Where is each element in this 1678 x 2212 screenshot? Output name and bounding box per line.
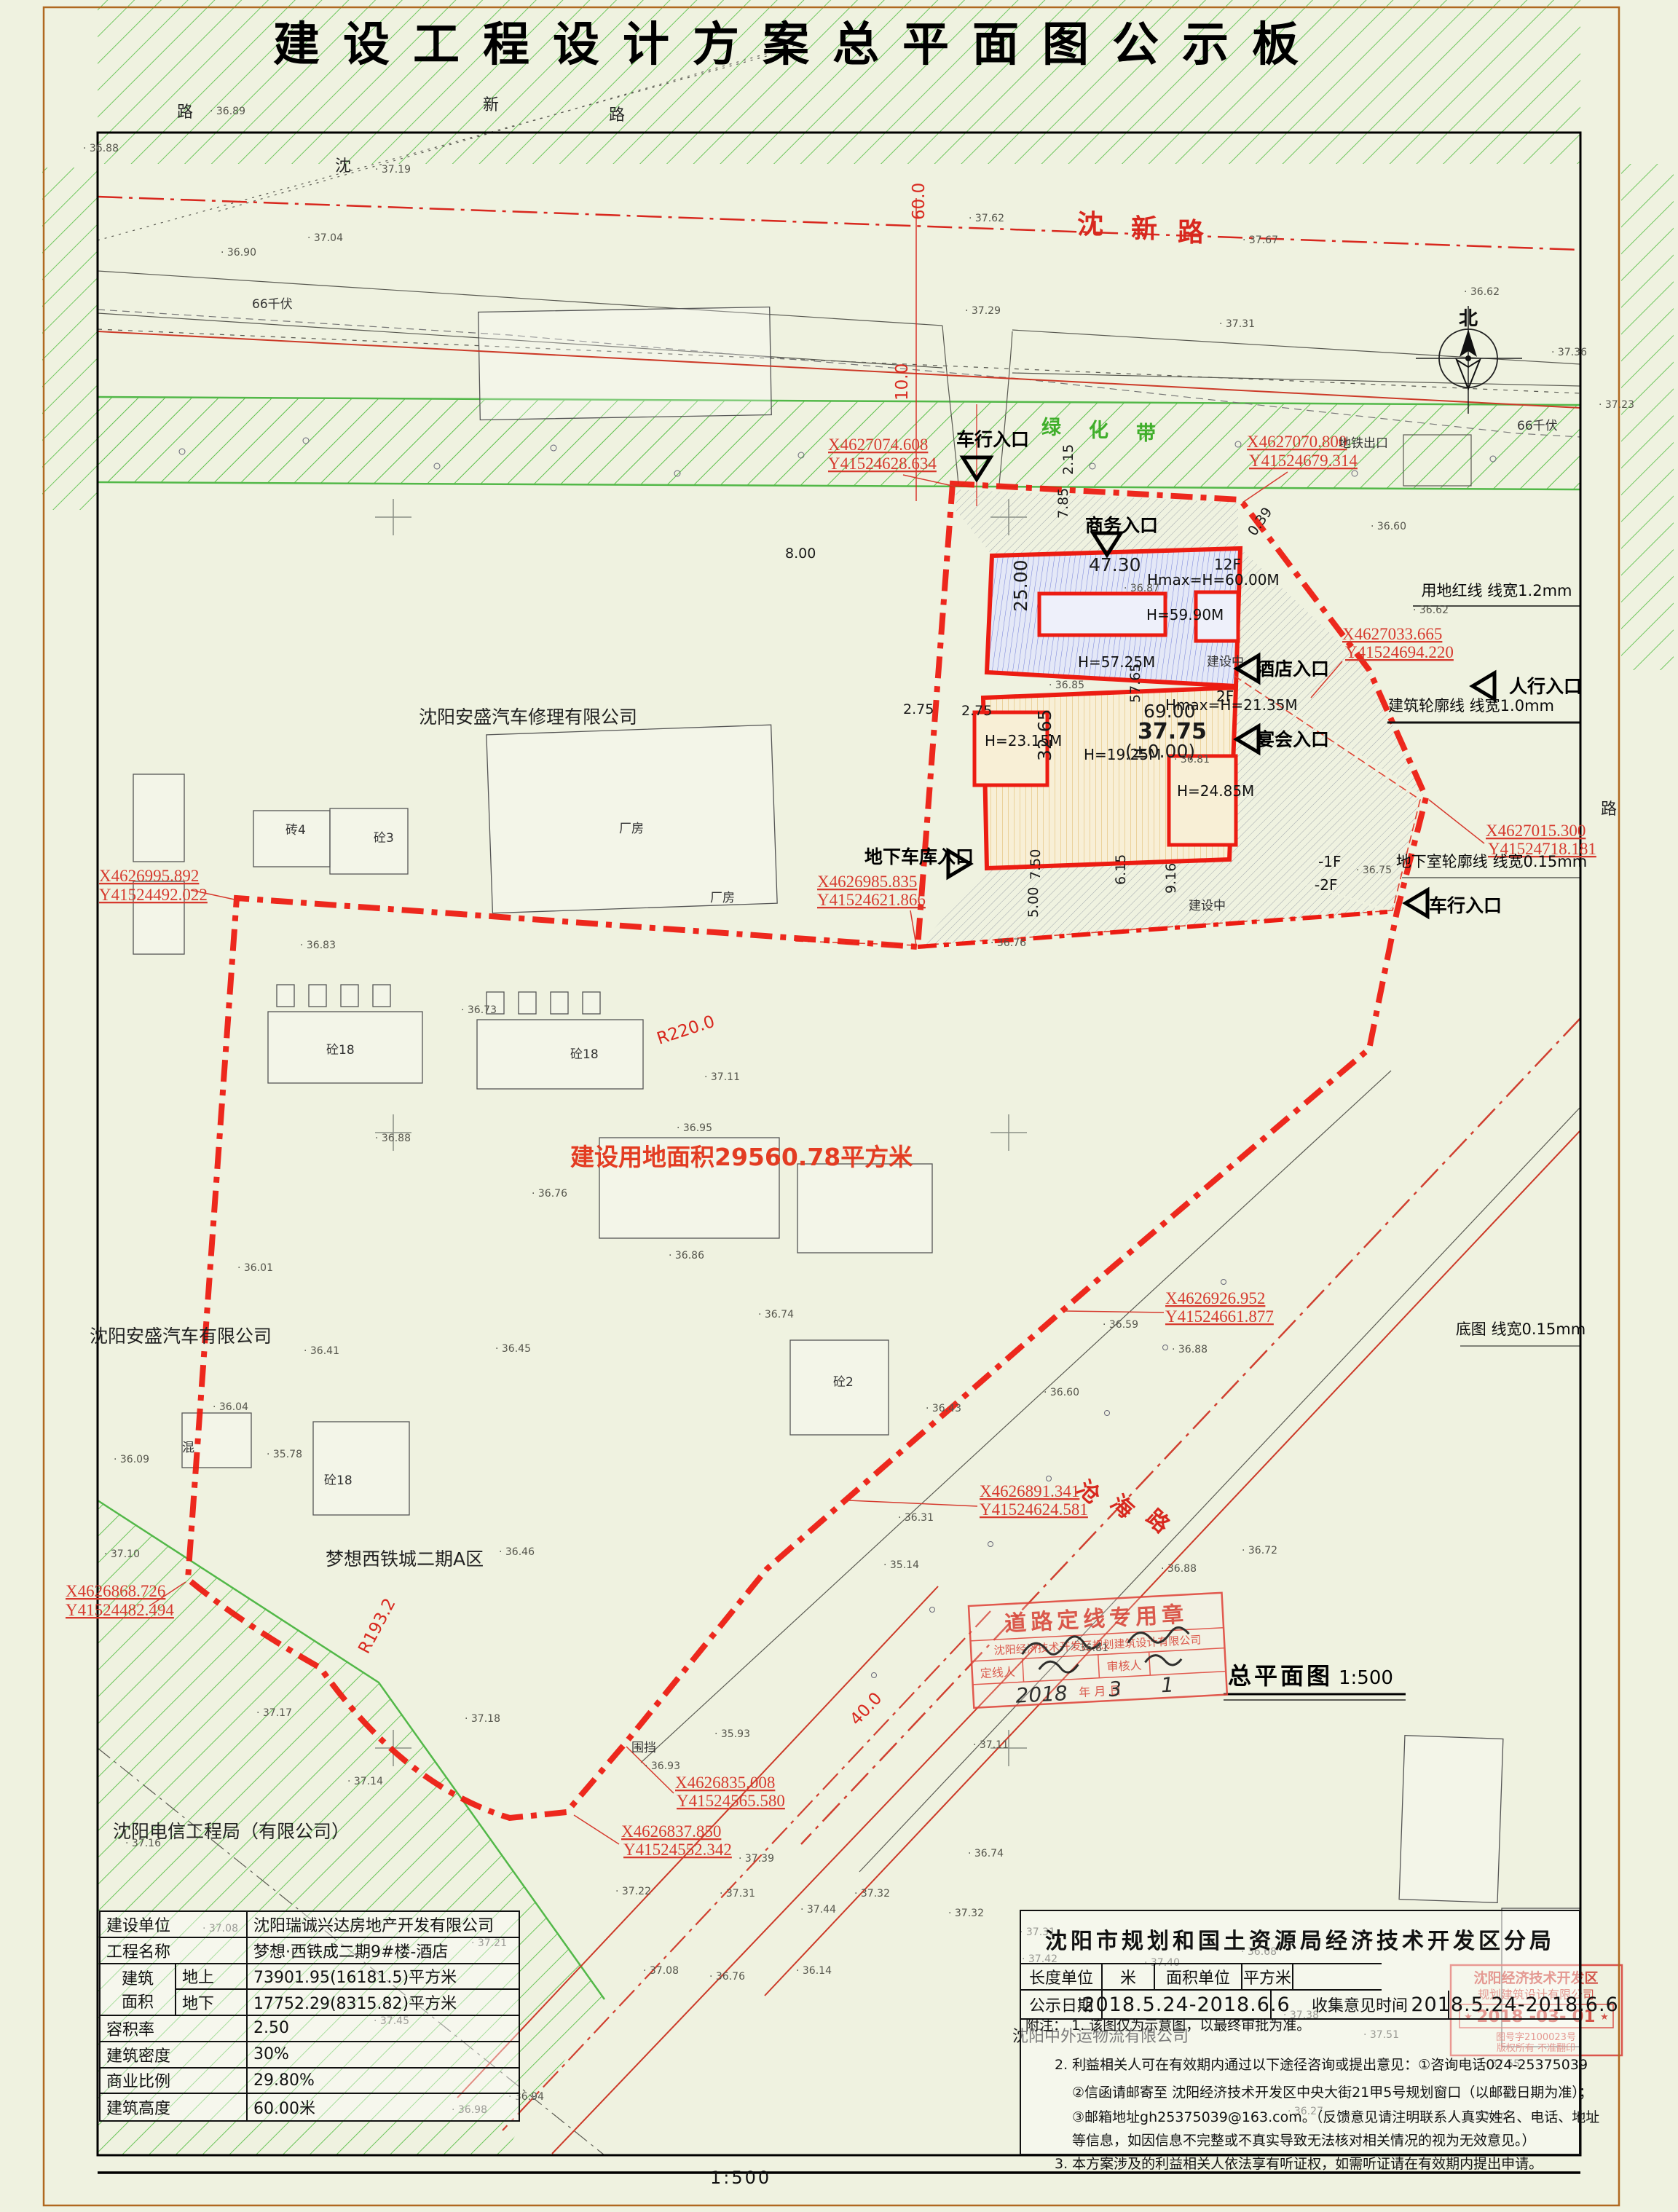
spot-elevation: · 36.93	[645, 1760, 680, 1772]
spot-elevation: · 35.93	[714, 1728, 750, 1740]
spot-elevation: · 36.41	[304, 1345, 339, 1357]
map-label: 新	[483, 96, 499, 114]
map-label: 建设中	[1207, 655, 1244, 669]
map-label: -2F	[1315, 876, 1337, 894]
coordinate-label: X4627033.665	[1342, 625, 1442, 643]
notes-line-6: 3. 本方案涉及的利益相关人依法享有听证权，如需听证请在有效期内提出申请。	[1055, 2153, 1543, 2173]
spot-elevation: · 35.78	[267, 1449, 302, 1460]
entrance-label: 人行入口	[1509, 676, 1582, 697]
note-1: 1. 该图仅为示意图，以最终审批为准。	[1071, 2018, 1310, 2034]
info-label-commercial-ratio: 商业比例	[101, 2069, 248, 2095]
spot-elevation: · 36.83	[300, 940, 336, 951]
info-label-density: 建筑密度	[101, 2042, 248, 2069]
spot-elevation: · 36.72	[1242, 1545, 1277, 1556]
info-value-above-ground: 73901.95(16181.5)平方米	[248, 1964, 519, 1991]
units-row: 长度单位 米 面积单位 平方米	[1021, 1963, 1382, 1991]
spot-elevation: · 35.14	[883, 1559, 919, 1571]
map-label: 路	[177, 103, 193, 122]
map-label: 6.15	[1113, 854, 1129, 885]
coordinate-label: Y41524628.634	[828, 454, 937, 473]
handwritten-month: 3	[1108, 1677, 1122, 1701]
spot-elevation: · 36.76	[532, 1188, 567, 1200]
info-value-project: 梦想·西铁成二期9#楼-酒店	[248, 1938, 519, 1964]
map-label: 建设中	[1189, 899, 1226, 913]
coordinate-label: X4626891.341	[980, 1482, 1079, 1500]
map-label: 7.50	[1028, 849, 1044, 880]
map-label: 57.65	[1127, 664, 1143, 703]
map-label: 地下室轮廓线 线宽0.15mm	[1396, 853, 1587, 870]
map-label: 5.00	[1025, 887, 1041, 918]
plan-caption: 总平面图 1:500	[1224, 1662, 1406, 1700]
spot-elevation: · 36.90	[221, 247, 256, 259]
coordinate-label: X4627074.608	[828, 436, 928, 454]
map-label: 47.30	[1089, 554, 1141, 575]
podium-block-h2485	[1169, 756, 1236, 845]
coordinate-label: Y41524661.877	[1165, 1307, 1274, 1326]
map-label: 25.00	[1010, 559, 1031, 612]
coordinate-label: Y41524624.581	[980, 1500, 1088, 1519]
map-label: Hmax=H=60.00M	[1147, 571, 1280, 589]
spot-elevation: · 37.67	[1242, 235, 1278, 246]
map-label: 66千伏	[1517, 419, 1558, 433]
spot-elevation: · 37.18	[465, 1713, 500, 1725]
plan-caption-scale: 1:500	[1339, 1667, 1393, 1689]
unit-area-label: 面积单位	[1155, 1964, 1242, 1989]
map-label: 66千伏	[252, 297, 293, 312]
spot-elevation: · 36.62	[1464, 286, 1500, 298]
authority-name: 沈阳市规划和国土资源局经济技术开发区分局	[1021, 1923, 1579, 1955]
info-label-floor-area-2: 面积	[122, 1989, 154, 2012]
coordinate-label: Y41524492.022	[99, 886, 208, 904]
notes-label: 附注：	[1025, 2018, 1067, 2034]
coordinate-label: Y41524679.314	[1249, 452, 1358, 470]
info-value-height: 60.00米	[248, 2094, 519, 2120]
coordinate-label: X4626868.726	[66, 1582, 165, 1600]
map-label: 底图 线宽0.15mm	[1456, 1320, 1586, 1338]
unit-area-value: 平方米	[1242, 1964, 1293, 1989]
unit-length-value: 米	[1103, 1964, 1155, 1989]
map-label: 新	[1131, 214, 1157, 244]
notice-board-sheet: 北 总平面图 1:500 道路定线专用章 沈阳经济技术开发区规划建筑设计有限公司…	[0, 0, 1678, 2212]
spot-elevation: · 37.29	[965, 305, 1001, 317]
coordinate-label: Y41524552.342	[623, 1841, 732, 1859]
map-label: 混	[182, 1441, 194, 1455]
map-label: H=59.90M	[1146, 606, 1224, 623]
spot-elevation: · 36.09	[114, 1454, 149, 1465]
map-label: 砼18	[570, 1047, 599, 1062]
notes-line-1: 附注： 1. 该图仅为示意图，以最终审批为准。	[1025, 2015, 1310, 2034]
map-label: 路	[609, 106, 625, 125]
entrance-label: 地下车库入口	[864, 846, 974, 867]
info-label-project: 工程名称	[101, 1938, 248, 1964]
spot-elevation: · 37.19	[375, 164, 411, 176]
spot-elevation: · 36.59	[1103, 1319, 1138, 1331]
spot-elevation: · 36.86	[669, 1250, 704, 1262]
spot-elevation: · 37.62	[969, 213, 1004, 224]
spot-elevation: · 36.43	[926, 1403, 961, 1414]
spot-elevation: · 37.44	[800, 1904, 836, 1916]
spot-elevation: · 36.88	[1161, 1563, 1197, 1575]
road-stamp-cell-right: 审核人	[1106, 1658, 1142, 1674]
unit-filler-cell	[1293, 1964, 1382, 1989]
page-title: 建设工程设计方案总平面图公示板	[273, 7, 1322, 74]
spot-elevation: · 37.10	[104, 1548, 140, 1560]
spot-elevation: · 37.31	[1219, 318, 1255, 330]
entrance-label: 商务入口	[1085, 515, 1158, 536]
map-label: 绿	[1041, 417, 1062, 439]
spot-elevation: · 36.88	[375, 1133, 411, 1144]
map-label: 厂房	[619, 822, 644, 836]
map-label: 围挡	[631, 1741, 656, 1755]
map-label: 带	[1136, 422, 1156, 445]
info-label-above-ground: 地上	[176, 1964, 248, 1991]
spot-elevation: · 36.04	[213, 1401, 248, 1413]
map-label: 沈	[335, 157, 351, 176]
map-label: 砼3	[374, 831, 394, 846]
spot-elevation: · 36.74	[968, 1848, 1004, 1859]
spot-elevation: · 36.87	[1124, 583, 1159, 594]
spot-elevation: · 37.16	[125, 1838, 161, 1849]
map-label: 沈阳安盛汽车有限公司	[90, 1326, 272, 1347]
podium-building	[974, 688, 1236, 868]
info-value-owner: 沈阳瑞诚兴达房地产开发有限公司	[248, 1912, 519, 1938]
map-label: 砼18	[326, 1043, 355, 1058]
spot-elevation: · 37.23	[1599, 399, 1634, 411]
entrance-label: 宴会入口	[1256, 729, 1329, 750]
spot-elevation: · 37.39	[738, 1853, 774, 1865]
spot-elevation: · 36.62	[1413, 605, 1449, 616]
info-label-owner: 建设单位	[101, 1912, 248, 1938]
handwritten-day: 1	[1160, 1672, 1175, 1697]
coordinate-label: Y41524621.866	[817, 891, 926, 909]
map-label: 沈	[1077, 210, 1103, 240]
map-label: 60.0	[910, 183, 929, 220]
map-label: 沈阳安盛汽车修理有限公司	[419, 706, 637, 728]
info-label-height: 建筑高度	[101, 2094, 248, 2120]
map-label: 用地红线 线宽1.2mm	[1422, 582, 1572, 599]
spot-elevation: · 36.81	[1073, 1642, 1108, 1654]
info-value-density: 30%	[248, 2042, 519, 2069]
map-label: 2.75	[903, 701, 934, 717]
site-plan-map: 北 总平面图 1:500 道路定线专用章 沈阳经济技术开发区规划建筑设计有限公司…	[0, 0, 1678, 2212]
map-label: 10.0	[893, 363, 912, 401]
spot-elevation: · 36.46	[499, 1546, 535, 1558]
plan-caption-title: 总平面图	[1228, 1662, 1333, 1690]
info-label-floor-area-1: 建筑	[122, 1966, 154, 1989]
map-label: H=57.25M	[1078, 653, 1155, 671]
spot-elevation: · 36.60	[1044, 1387, 1079, 1398]
spot-elevation: · 36.88	[83, 143, 119, 154]
spot-elevation: · 36.76	[990, 937, 1026, 949]
notes-line-2: 2. 利益相关人可在有效期内通过以下途径咨询或提出意见：①咨询电话024-253…	[1055, 2054, 1588, 2074]
info-label-below-ground: 地下	[176, 1990, 248, 2016]
map-label: -1F	[1318, 853, 1341, 870]
map-label: 32.65	[1034, 709, 1055, 761]
map-label: 砖4	[285, 823, 306, 838]
spot-elevation: · 37.17	[256, 1707, 292, 1719]
spot-elevation: · 37.14	[347, 1776, 383, 1787]
map-label: 8.00	[785, 546, 816, 562]
spot-elevation: · 36.75	[1356, 865, 1392, 876]
spot-elevation: · 37.11	[973, 1739, 1009, 1751]
coordinate-label: X4626835.008	[675, 1774, 775, 1792]
spot-elevation: · 36.81	[1174, 754, 1210, 765]
spot-elevation: · 36.88	[1172, 1344, 1208, 1355]
coordinate-label: Y41524482.494	[66, 1601, 174, 1619]
map-label: 路	[1601, 800, 1617, 819]
map-label: 砼18	[324, 1473, 352, 1488]
spot-elevation: · 37.22	[615, 1886, 651, 1897]
map-label: 地铁出口	[1339, 436, 1388, 451]
sheet-scale: 1:500	[710, 2168, 771, 2188]
spot-elevation: · 37.04	[307, 232, 343, 244]
coordinate-label: Y41524565.580	[677, 1792, 785, 1810]
coordinate-label: X4626985.835	[817, 873, 917, 891]
coordinate-label: X4627015.300	[1486, 822, 1586, 840]
notes-line-3: ②信函请邮寄至 沈阳经济技术开发区中央大街21甲5号规划窗口（以邮戳日期为准）；	[1072, 2082, 1593, 2101]
spot-elevation: · 36.85	[1049, 680, 1084, 691]
map-label: 2.15	[1060, 444, 1076, 475]
coordinate-label: X4627070.800	[1247, 433, 1347, 451]
map-label: 建设用地面积29560.78平方米	[570, 1143, 913, 1171]
collect-date-value: 2018.5.24-2018.6.6	[1449, 1991, 1580, 2018]
handwritten-year: 2018	[1015, 1681, 1068, 1708]
spot-elevation: · 36.95	[677, 1122, 712, 1134]
spot-elevation: · 37.08	[643, 1965, 679, 1977]
map-label: H=24.85M	[1177, 782, 1254, 800]
info-label-far: 容积率	[101, 2016, 248, 2042]
road-stamp-cell-left: 定线人	[980, 1665, 1015, 1680]
map-label: 路	[1178, 218, 1205, 248]
info-value-below-ground: 17752.29(8315.82)平方米	[248, 1990, 519, 2016]
coordinate-label: X4626926.952	[1165, 1289, 1265, 1307]
coordinate-label: X4626837.850	[621, 1822, 721, 1841]
notes-line-5: 等信息，如因信息不完整或不真实导致无法核对相关情况的视为无效意见。）	[1072, 2130, 1536, 2149]
map-label: 建筑轮廓线 线宽1.0mm	[1388, 697, 1554, 715]
info-value-commercial-ratio: 29.80%	[248, 2069, 519, 2095]
map-label: 化	[1089, 420, 1108, 442]
spot-elevation: · 36.89	[210, 106, 245, 117]
spot-elevation: · 37.11	[704, 1071, 740, 1083]
info-label-floor-area: 建筑 面积	[101, 1964, 176, 2017]
spot-elevation: · 36.76	[709, 1971, 745, 1983]
spot-elevation: · 36.60	[1371, 521, 1406, 532]
notes-line-4: ③邮箱地址gh25375039@163.com。（反馈意见请注明联系人真实姓名、…	[1072, 2106, 1599, 2126]
spot-elevation: · 37.32	[948, 1908, 984, 1919]
map-label: 砼2	[833, 1375, 854, 1390]
spot-elevation: · 36.01	[237, 1262, 273, 1274]
spot-elevation: · 36.45	[495, 1343, 531, 1355]
project-info-table: 建设单位 沈阳瑞诚兴达房地产开发有限公司 工程名称 梦想·西铁成二期9#楼-酒店…	[99, 1910, 520, 2122]
spot-elevation: · 36.73	[461, 1004, 497, 1016]
entrance-label: 车行入口	[956, 429, 1029, 450]
map-label: 梦想西铁城二期A区	[326, 1548, 484, 1570]
map-label: 9.16	[1163, 863, 1179, 894]
map-label: 2.75	[961, 703, 992, 719]
entrance-label: 酒店入口	[1256, 658, 1329, 680]
spot-elevation: · 37.36	[1551, 347, 1587, 358]
unit-length-label: 长度单位	[1021, 1964, 1103, 1989]
map-label: 厂房	[710, 891, 735, 905]
spot-elevation: · 37.31	[720, 1888, 755, 1900]
spot-elevation: · 36.31	[898, 1512, 934, 1524]
entrance-label: 车行入口	[1429, 895, 1502, 916]
coordinate-label: Y41524694.220	[1345, 643, 1454, 661]
spot-elevation: · 36.74	[758, 1309, 794, 1320]
north-label: 北	[1459, 308, 1478, 330]
info-value-far: 2.50	[248, 2016, 519, 2042]
spot-elevation: · 36.14	[796, 1965, 832, 1977]
coordinate-label: X4626995.892	[99, 867, 199, 885]
map-label: 7.85	[1055, 488, 1071, 519]
spot-elevation: · 37.32	[854, 1888, 890, 1900]
